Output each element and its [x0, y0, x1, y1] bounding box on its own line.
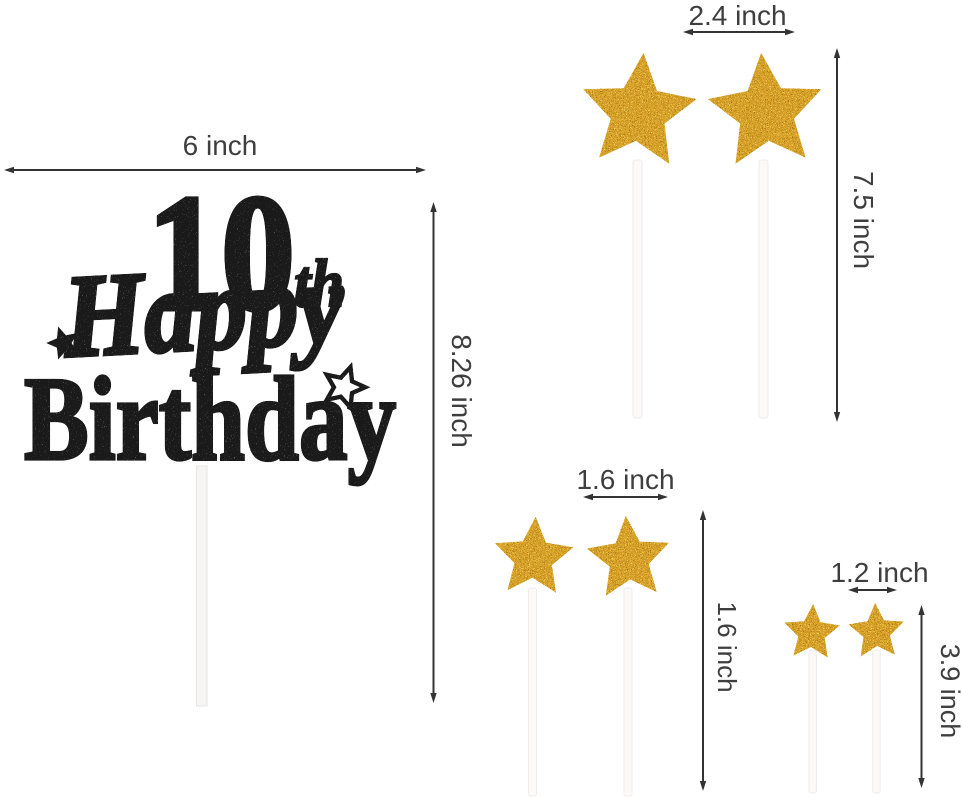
- svg-text:Birthday: Birthday: [24, 352, 396, 485]
- svg-text:6 inch: 6 inch: [183, 130, 258, 161]
- svg-text:3.9 inch: 3.9 inch: [935, 644, 963, 739]
- svg-text:2.4 inch: 2.4 inch: [688, 0, 786, 31]
- svg-text:1.6 inch: 1.6 inch: [576, 464, 674, 495]
- svg-text:1.2 inch: 1.2 inch: [830, 557, 928, 588]
- svg-text:8.26 inch: 8.26 inch: [446, 334, 477, 448]
- svg-text:7.5 inch: 7.5 inch: [848, 171, 879, 269]
- svg-text:1.6 inch: 1.6 inch: [712, 601, 742, 692]
